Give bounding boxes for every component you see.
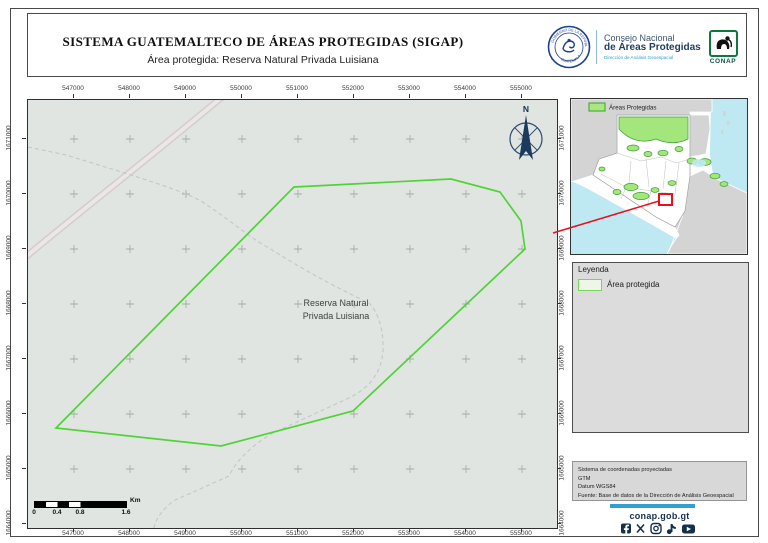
north-label: N — [523, 104, 529, 114]
footer-accent-bar — [610, 504, 695, 508]
scale-bar-label: 0 — [32, 509, 36, 516]
y-axis-tick-right — [557, 248, 561, 249]
x-axis-label-top: 554000 — [454, 85, 476, 92]
logo-divider — [596, 30, 597, 64]
header-logos: GOBIERNO DE LA REPÚBLICA GUATEMALA Conse… — [547, 20, 740, 74]
x-axis-label-top: 553000 — [398, 85, 420, 92]
guatemala-inset-graphic: Áreas Protegidas — [571, 99, 747, 254]
x-axis-tick-top — [353, 94, 354, 98]
y-axis-label-left: 1669000 — [6, 235, 13, 260]
road-center — [28, 100, 228, 260]
conap-logo: CONAP — [706, 30, 740, 65]
x-axis-tick-bottom — [521, 528, 522, 532]
x-axis-tick-bottom — [185, 528, 186, 532]
credits-panel: Sistema de coordenadas proyectadas GTM D… — [572, 461, 747, 501]
x-axis-label-top: 552000 — [342, 85, 364, 92]
credits-line: Datum WGS84 — [578, 483, 741, 492]
x-axis-tick-top — [73, 94, 74, 98]
y-axis-tick-left — [22, 523, 26, 524]
header: SISTEMA GUATEMALTECO DE ÁREAS PROTEGIDAS… — [27, 13, 747, 77]
scale-bar-label: 0.4 — [52, 509, 61, 516]
x-axis-tick-top — [185, 94, 186, 98]
y-axis-tick-left — [22, 138, 26, 139]
y-axis-label-left: 1665000 — [6, 455, 13, 480]
x-axis-label-top: 547000 — [62, 85, 84, 92]
instagram-icon[interactable] — [651, 524, 661, 534]
legend-title: Leyenda — [578, 265, 609, 274]
credits-line: Sistema de coordenadas proyectadas — [578, 466, 741, 475]
x-axis-tick-top — [465, 94, 466, 98]
protected-area-label-line2: Privada Luisiana — [256, 310, 416, 323]
x-axis-tick-top — [297, 94, 298, 98]
x-axis-tick-bottom — [353, 528, 354, 532]
facebook-icon[interactable] — [621, 524, 631, 534]
page-title: SISTEMA GUATEMALTECO DE ÁREAS PROTEGIDAS… — [28, 34, 498, 50]
x-axis-tick-top — [409, 94, 410, 98]
protected-area-label-line1: Reserva Natural — [256, 297, 416, 310]
y-axis-label-left: 1670000 — [6, 180, 13, 205]
scale-bar-unit: Km — [130, 497, 140, 504]
x-axis-tick-bottom — [73, 528, 74, 532]
y-axis-tick-left — [22, 468, 26, 469]
y-axis-tick-right — [557, 193, 561, 194]
website-link[interactable]: conap.gob.gt — [572, 511, 747, 521]
x-axis-tick-bottom — [465, 528, 466, 532]
y-axis-tick-right — [557, 413, 561, 414]
y-axis-label-left: 1671000 — [6, 125, 13, 150]
y-axis-tick-left — [22, 193, 26, 194]
x-axis-tick-top — [241, 94, 242, 98]
y-axis-tick-right — [557, 523, 561, 524]
x-axis-label-top: 551000 — [286, 85, 308, 92]
page-subtitle: Área protegida: Reserva Natural Privada … — [28, 54, 498, 66]
conap-emblem-icon — [709, 30, 738, 57]
legend-protected-area-swatch — [578, 279, 602, 291]
x-axis-label-top: 550000 — [230, 85, 252, 92]
scale-bar-label: 1.6 — [121, 509, 130, 516]
x-axis-tick-bottom — [129, 528, 130, 532]
conap-wordmark-line3: Dirección de Análisis Geoespacial — [604, 56, 702, 61]
x-axis-tick-bottom — [409, 528, 410, 532]
y-axis-tick-right — [557, 138, 561, 139]
x-axis-tick-bottom — [297, 528, 298, 532]
government-seal-icon: GOBIERNO DE LA REPÚBLICA GUATEMALA — [547, 25, 591, 69]
y-axis-tick-left — [22, 358, 26, 359]
tiktok-icon[interactable] — [666, 524, 675, 534]
y-axis-label-left: 1668000 — [6, 290, 13, 315]
guatemala-locator-map: Áreas Protegidas — [570, 98, 748, 255]
y-axis-label-left: 1666000 — [6, 400, 13, 425]
x-icon[interactable] — [637, 525, 644, 533]
north-arrow-icon: N — [505, 102, 547, 166]
header-texts: SISTEMA GUATEMALTECO DE ÁREAS PROTEGIDAS… — [28, 14, 498, 76]
youtube-icon[interactable] — [682, 525, 695, 534]
x-axis-label-top: 555000 — [510, 85, 532, 92]
y-axis-tick-left — [22, 413, 26, 414]
credits-line: Fuente: Base de datos de la Dirección de… — [578, 492, 741, 501]
conap-label: CONAP — [706, 58, 740, 65]
x-axis-label-top: 549000 — [174, 85, 196, 92]
credits-line: GTM — [578, 475, 741, 484]
legend-panel: Leyenda Área protegida — [572, 262, 749, 433]
y-axis-tick-right — [557, 358, 561, 359]
conap-wordmark-line2: de Áreas Protegidas — [604, 43, 702, 54]
x-axis-tick-top — [521, 94, 522, 98]
y-axis-label-left: 1664000 — [6, 510, 13, 535]
x-axis-tick-top — [129, 94, 130, 98]
scale-bar-label: 0.8 — [75, 509, 84, 516]
x-axis-label-top: 548000 — [118, 85, 140, 92]
conap-wordmark: Consejo Nacional de Áreas Protegidas Dir… — [604, 34, 702, 61]
legend-item-label: Área protegida — [607, 280, 659, 289]
inset-legend-swatch — [589, 103, 605, 111]
main-map: Reserva Natural Privada Luisiana N Km 00… — [27, 99, 558, 529]
map-document-page: SISTEMA GUATEMALTECO DE ÁREAS PROTEGIDAS… — [0, 0, 768, 543]
inset-legend-label: Áreas Protegidas — [609, 105, 656, 112]
y-axis-tick-right — [557, 303, 561, 304]
x-axis-tick-bottom — [241, 528, 242, 532]
social-icons-row — [572, 522, 747, 540]
y-axis-label-left: 1667000 — [6, 345, 13, 370]
y-axis-tick-left — [22, 303, 26, 304]
y-axis-tick-left — [22, 248, 26, 249]
trail-dashed-line — [28, 147, 383, 528]
y-axis-tick-right — [557, 468, 561, 469]
scale-bar: Km 00.40.81.6 — [34, 497, 184, 523]
road-casing — [28, 100, 228, 260]
protected-area-label: Reserva Natural Privada Luisiana — [256, 297, 416, 322]
